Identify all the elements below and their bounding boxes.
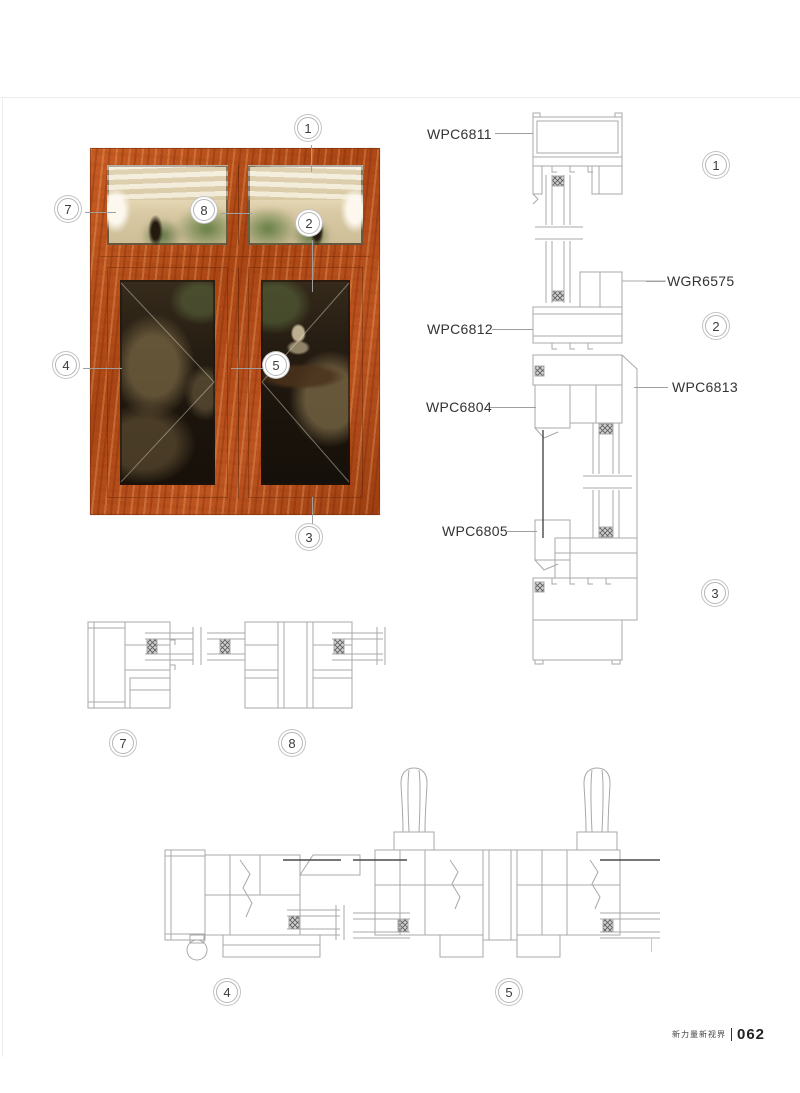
- section-circle-5: 5: [498, 981, 520, 1003]
- page-guide-vertical: [2, 97, 3, 1057]
- callout-number: 5: [272, 358, 279, 373]
- callout-number: 7: [64, 202, 71, 217]
- leader-callout-3: [312, 497, 313, 526]
- sash-outline-right: [248, 267, 363, 498]
- callout-circle-7: 7: [57, 198, 79, 220]
- callout-number: 8: [200, 203, 207, 218]
- label-wpc6804: WPC6804: [426, 399, 492, 415]
- page-number: 062: [737, 1026, 765, 1043]
- page-footer: 新力量新视界 062: [672, 1026, 765, 1043]
- callout-number: 7: [119, 736, 126, 751]
- plan-section-4-5-drawing: [160, 765, 670, 970]
- rail-seam: [100, 256, 370, 257]
- callout-number: 4: [62, 358, 69, 373]
- sash-outline-left: [107, 267, 228, 498]
- curtain-reflection: [331, 187, 363, 241]
- callout-number: 2: [305, 216, 312, 231]
- plan-section-7-8-drawing: [85, 615, 400, 720]
- leader-wpc6804: [490, 407, 536, 408]
- callout-number: 8: [288, 736, 295, 751]
- callout-number: 5: [505, 985, 512, 1000]
- callout-number: 3: [711, 586, 718, 601]
- leader-wpc6813: [634, 387, 668, 388]
- curtain-reflection: [107, 187, 141, 241]
- mullion-seam: [238, 267, 239, 498]
- window-photo: [90, 148, 380, 515]
- leader-callout-8: [221, 213, 252, 214]
- section-circle-8: 8: [281, 732, 303, 754]
- mullion-seam: [238, 165, 239, 245]
- callout-circle-1: 1: [297, 117, 319, 139]
- callout-circle-3: 3: [298, 526, 320, 548]
- label-wpc6805: WPC6805: [442, 523, 508, 539]
- page-guide-horizontal: [0, 97, 800, 98]
- layout-tick: [651, 938, 652, 952]
- label-wpc6811: WPC6811: [427, 126, 492, 142]
- leader-wgr6575: [646, 281, 665, 282]
- label-wgr6575: WGR6575: [667, 273, 734, 289]
- leader-wpc6805: [506, 531, 537, 532]
- section-circle-3: 3: [704, 582, 726, 604]
- section-circle-7: 7: [112, 732, 134, 754]
- catalog-page: 1 7 8 2 4 5 3: [0, 0, 800, 1093]
- callout-circle-5: 5: [265, 354, 287, 376]
- leader-callout-7: [85, 212, 116, 213]
- leader-callout-2: [312, 240, 313, 292]
- section-circle-1: 1: [705, 154, 727, 176]
- callout-circle-8: 8: [193, 199, 215, 221]
- leader-callout-1: [311, 145, 312, 172]
- section-circle-4: 4: [216, 981, 238, 1003]
- finial-silhouette: [148, 211, 163, 245]
- callout-circle-2: 2: [298, 212, 320, 234]
- label-wpc6813: WPC6813: [672, 379, 738, 395]
- callout-number: 1: [712, 158, 719, 173]
- footer-divider: [731, 1028, 732, 1041]
- label-wpc6812: WPC6812: [427, 321, 493, 337]
- callout-number: 2: [712, 319, 719, 334]
- leader-callout-4: [83, 368, 122, 369]
- section-circle-2: 2: [705, 315, 727, 337]
- callout-number: 3: [305, 530, 312, 545]
- callout-number: 1: [304, 121, 311, 136]
- leader-callout-5: [231, 368, 265, 369]
- callout-circle-4: 4: [55, 354, 77, 376]
- leader-wpc6812: [492, 329, 533, 330]
- leader-wpc6811: [495, 133, 533, 134]
- callout-number: 4: [223, 985, 230, 1000]
- footer-slogan: 新力量新视界: [672, 1029, 726, 1040]
